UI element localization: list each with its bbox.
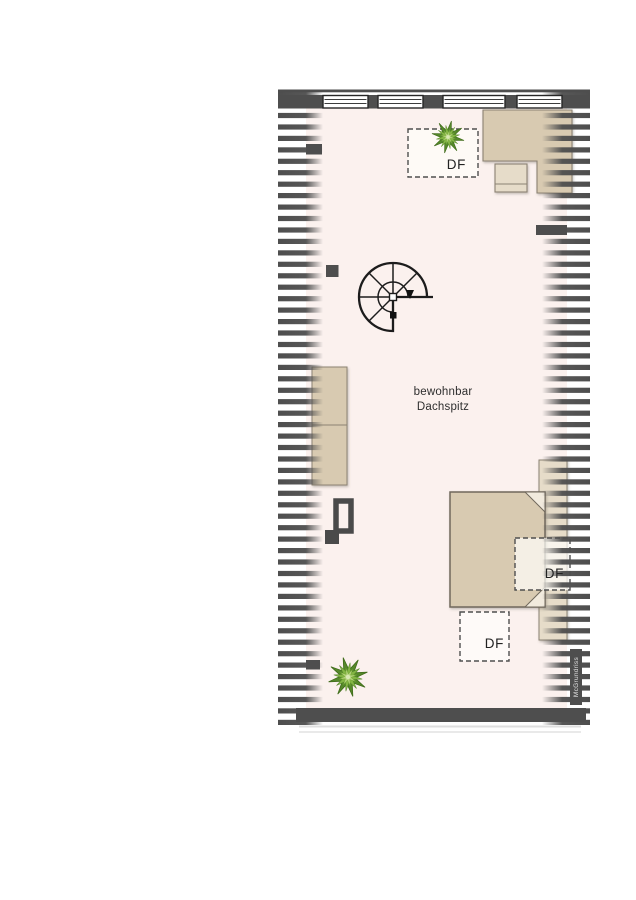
room-label: bewohnbar Dachspitz: [373, 385, 513, 414]
floorplan-canvas: [0, 0, 636, 900]
bottom-hatch-line-1: [299, 726, 581, 728]
watermark-label: McGrundriss: [573, 657, 580, 697]
stool: [495, 164, 527, 192]
skylight-label-middle: DF: [512, 566, 564, 581]
bottom-hatch-line-2: [299, 731, 581, 733]
watermark-tab: McGrundriss: [570, 649, 582, 705]
room-label-line2: Dachspitz: [373, 400, 513, 415]
wall-stub-right: [536, 225, 567, 235]
window-4: [517, 96, 562, 109]
wall-stub-left-bottom: [306, 660, 320, 670]
window-3: [443, 96, 505, 109]
gable-windows: [323, 96, 562, 109]
wall-stub-left-top: [306, 144, 322, 155]
window-1: [323, 96, 368, 109]
roof-ridge-line: [278, 90, 590, 93]
skylight-label-top: DF: [404, 157, 466, 172]
floorplan-page: bewohnbar Dachspitz DF DF DF McGrundriss: [0, 0, 636, 900]
bottom-wall: [296, 708, 586, 722]
skylight-label-bottom: DF: [458, 636, 504, 651]
window-2: [378, 96, 423, 109]
room-label-line1: bewohnbar: [373, 385, 513, 400]
chimney: [326, 265, 339, 277]
